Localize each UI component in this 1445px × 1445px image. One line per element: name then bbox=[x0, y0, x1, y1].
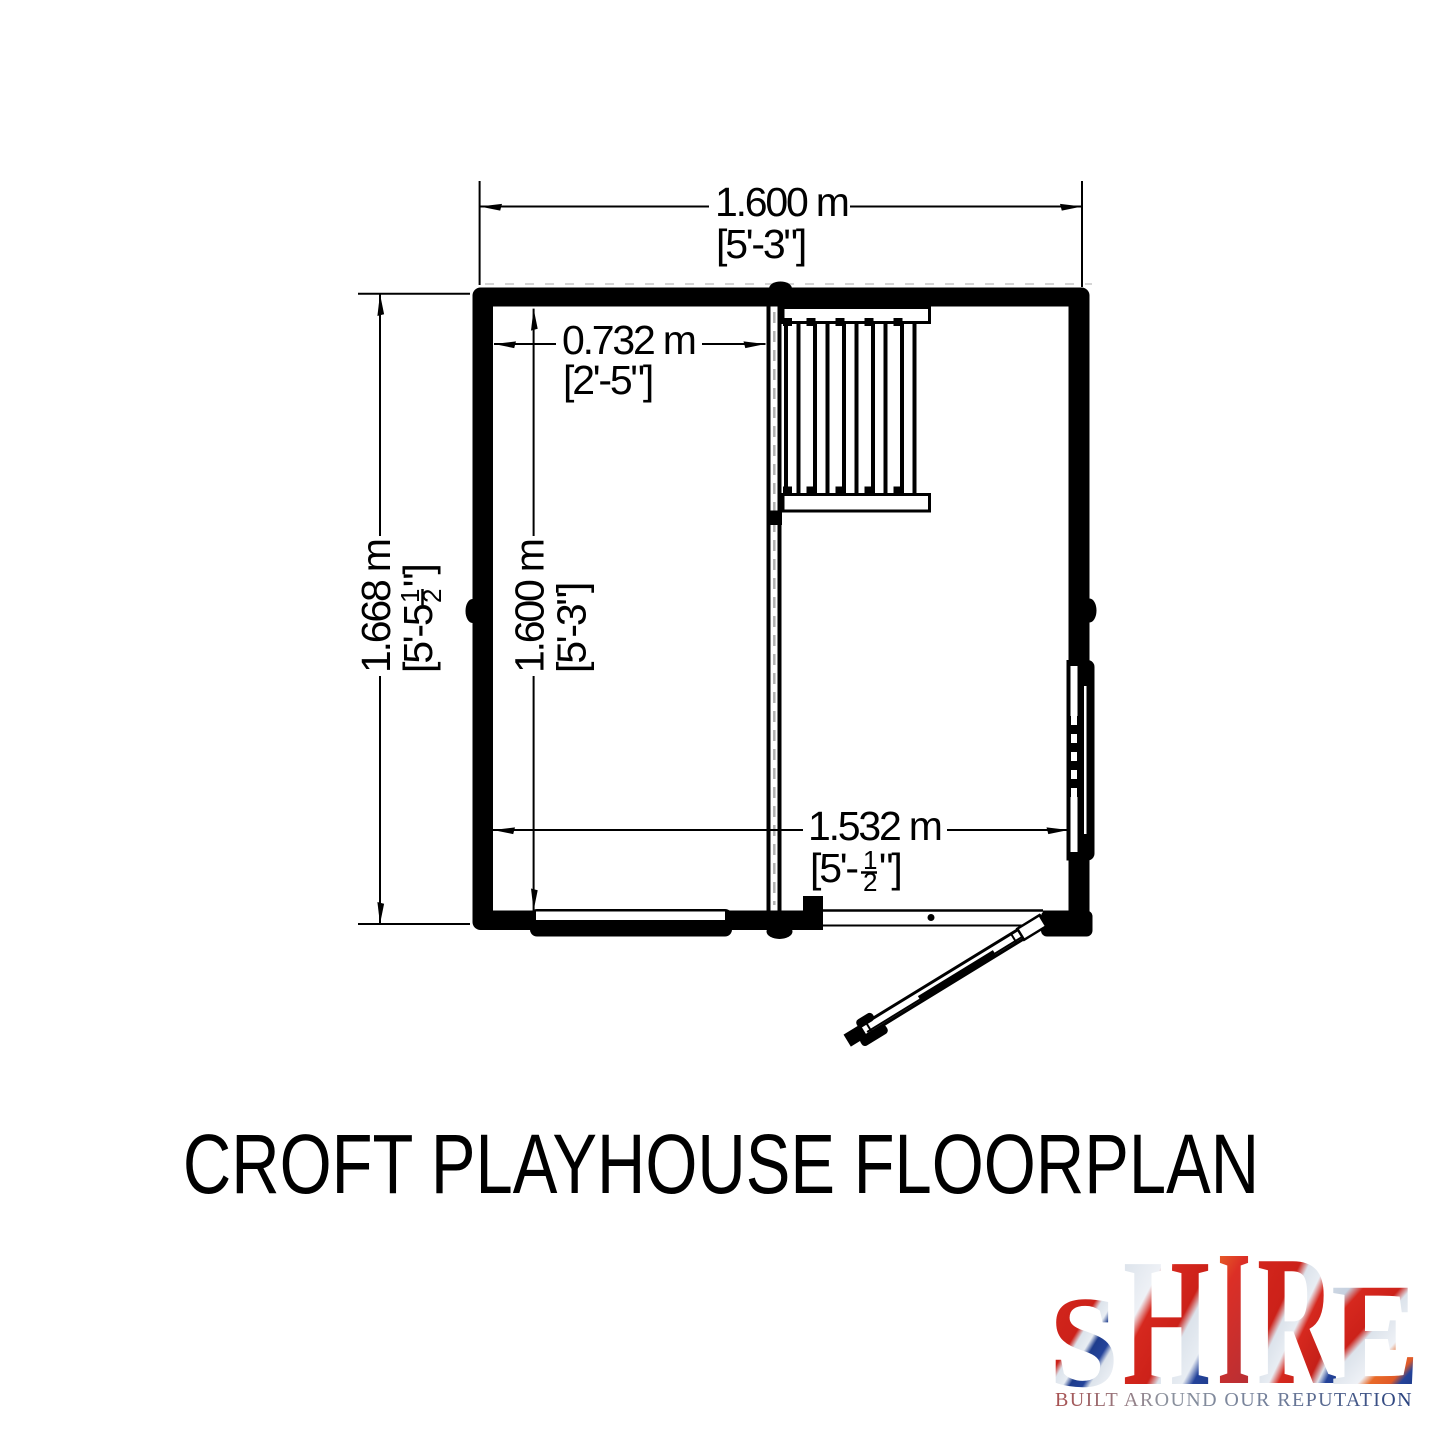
svg-text:"]: "] bbox=[879, 845, 901, 891]
svg-text:[5'-: [5'- bbox=[810, 845, 857, 891]
svg-text:BUILT AROUND OUR REPUTATION: BUILT AROUND OUR REPUTATION bbox=[1055, 1389, 1413, 1411]
svg-text:"]: "] bbox=[395, 565, 441, 587]
svg-text:[2'-5"]: [2'-5"] bbox=[563, 357, 652, 403]
svg-text:1.600 m: 1.600 m bbox=[715, 179, 848, 225]
svg-text:1.668 m: 1.668 m bbox=[353, 540, 399, 673]
svg-text:1.532 m: 1.532 m bbox=[808, 803, 941, 849]
svg-text:[5'-3"]: [5'-3"] bbox=[549, 584, 595, 673]
svg-text:2: 2 bbox=[863, 867, 877, 897]
svg-text:CROFT PLAYHOUSE FLOORPLAN: CROFT PLAYHOUSE FLOORPLAN bbox=[183, 1118, 1259, 1212]
svg-text:[5'-5: [5'-5 bbox=[395, 604, 441, 673]
svg-text:2: 2 bbox=[417, 589, 447, 603]
svg-text:1.600 m: 1.600 m bbox=[507, 540, 553, 673]
svg-text:[5'-3"]: [5'-3"] bbox=[716, 221, 805, 267]
